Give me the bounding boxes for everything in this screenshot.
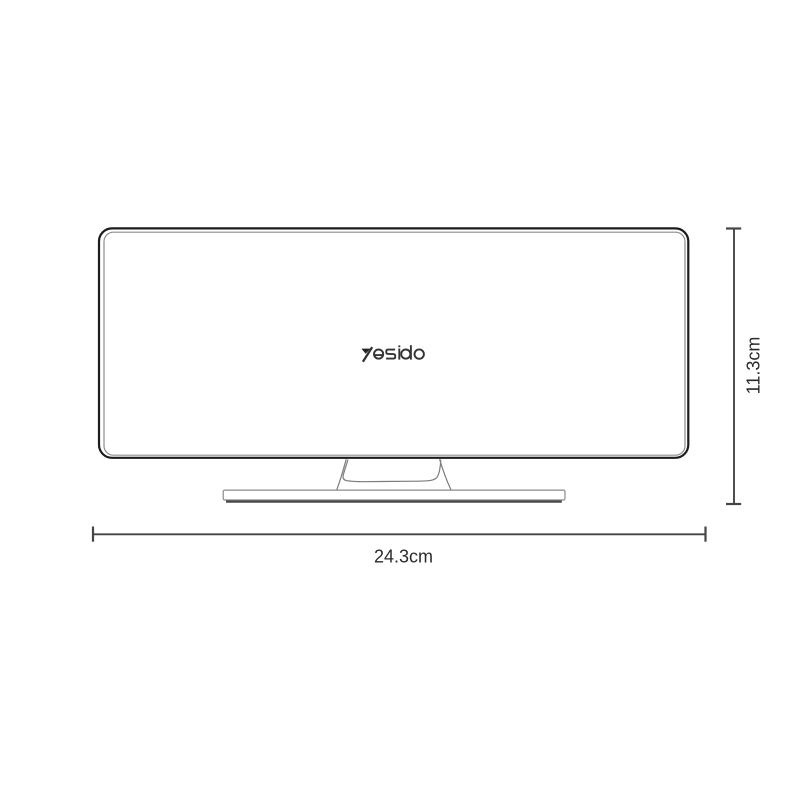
svg-text:11.3cm: 11.3cm	[744, 337, 764, 395]
svg-text:24.3cm: 24.3cm	[374, 546, 433, 566]
